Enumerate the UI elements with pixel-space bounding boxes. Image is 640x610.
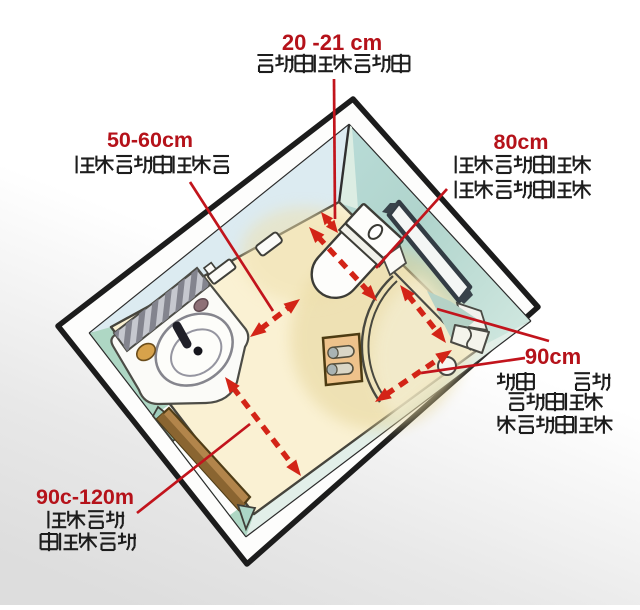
svg-text:90cm: 90cm (525, 344, 581, 369)
svg-text:80cm: 80cm (494, 130, 549, 154)
svg-text:50-60cm: 50-60cm (107, 128, 193, 152)
svg-text:90c-120m: 90c-120m (36, 485, 134, 509)
svg-text:20 -21 cm: 20 -21 cm (282, 30, 382, 55)
